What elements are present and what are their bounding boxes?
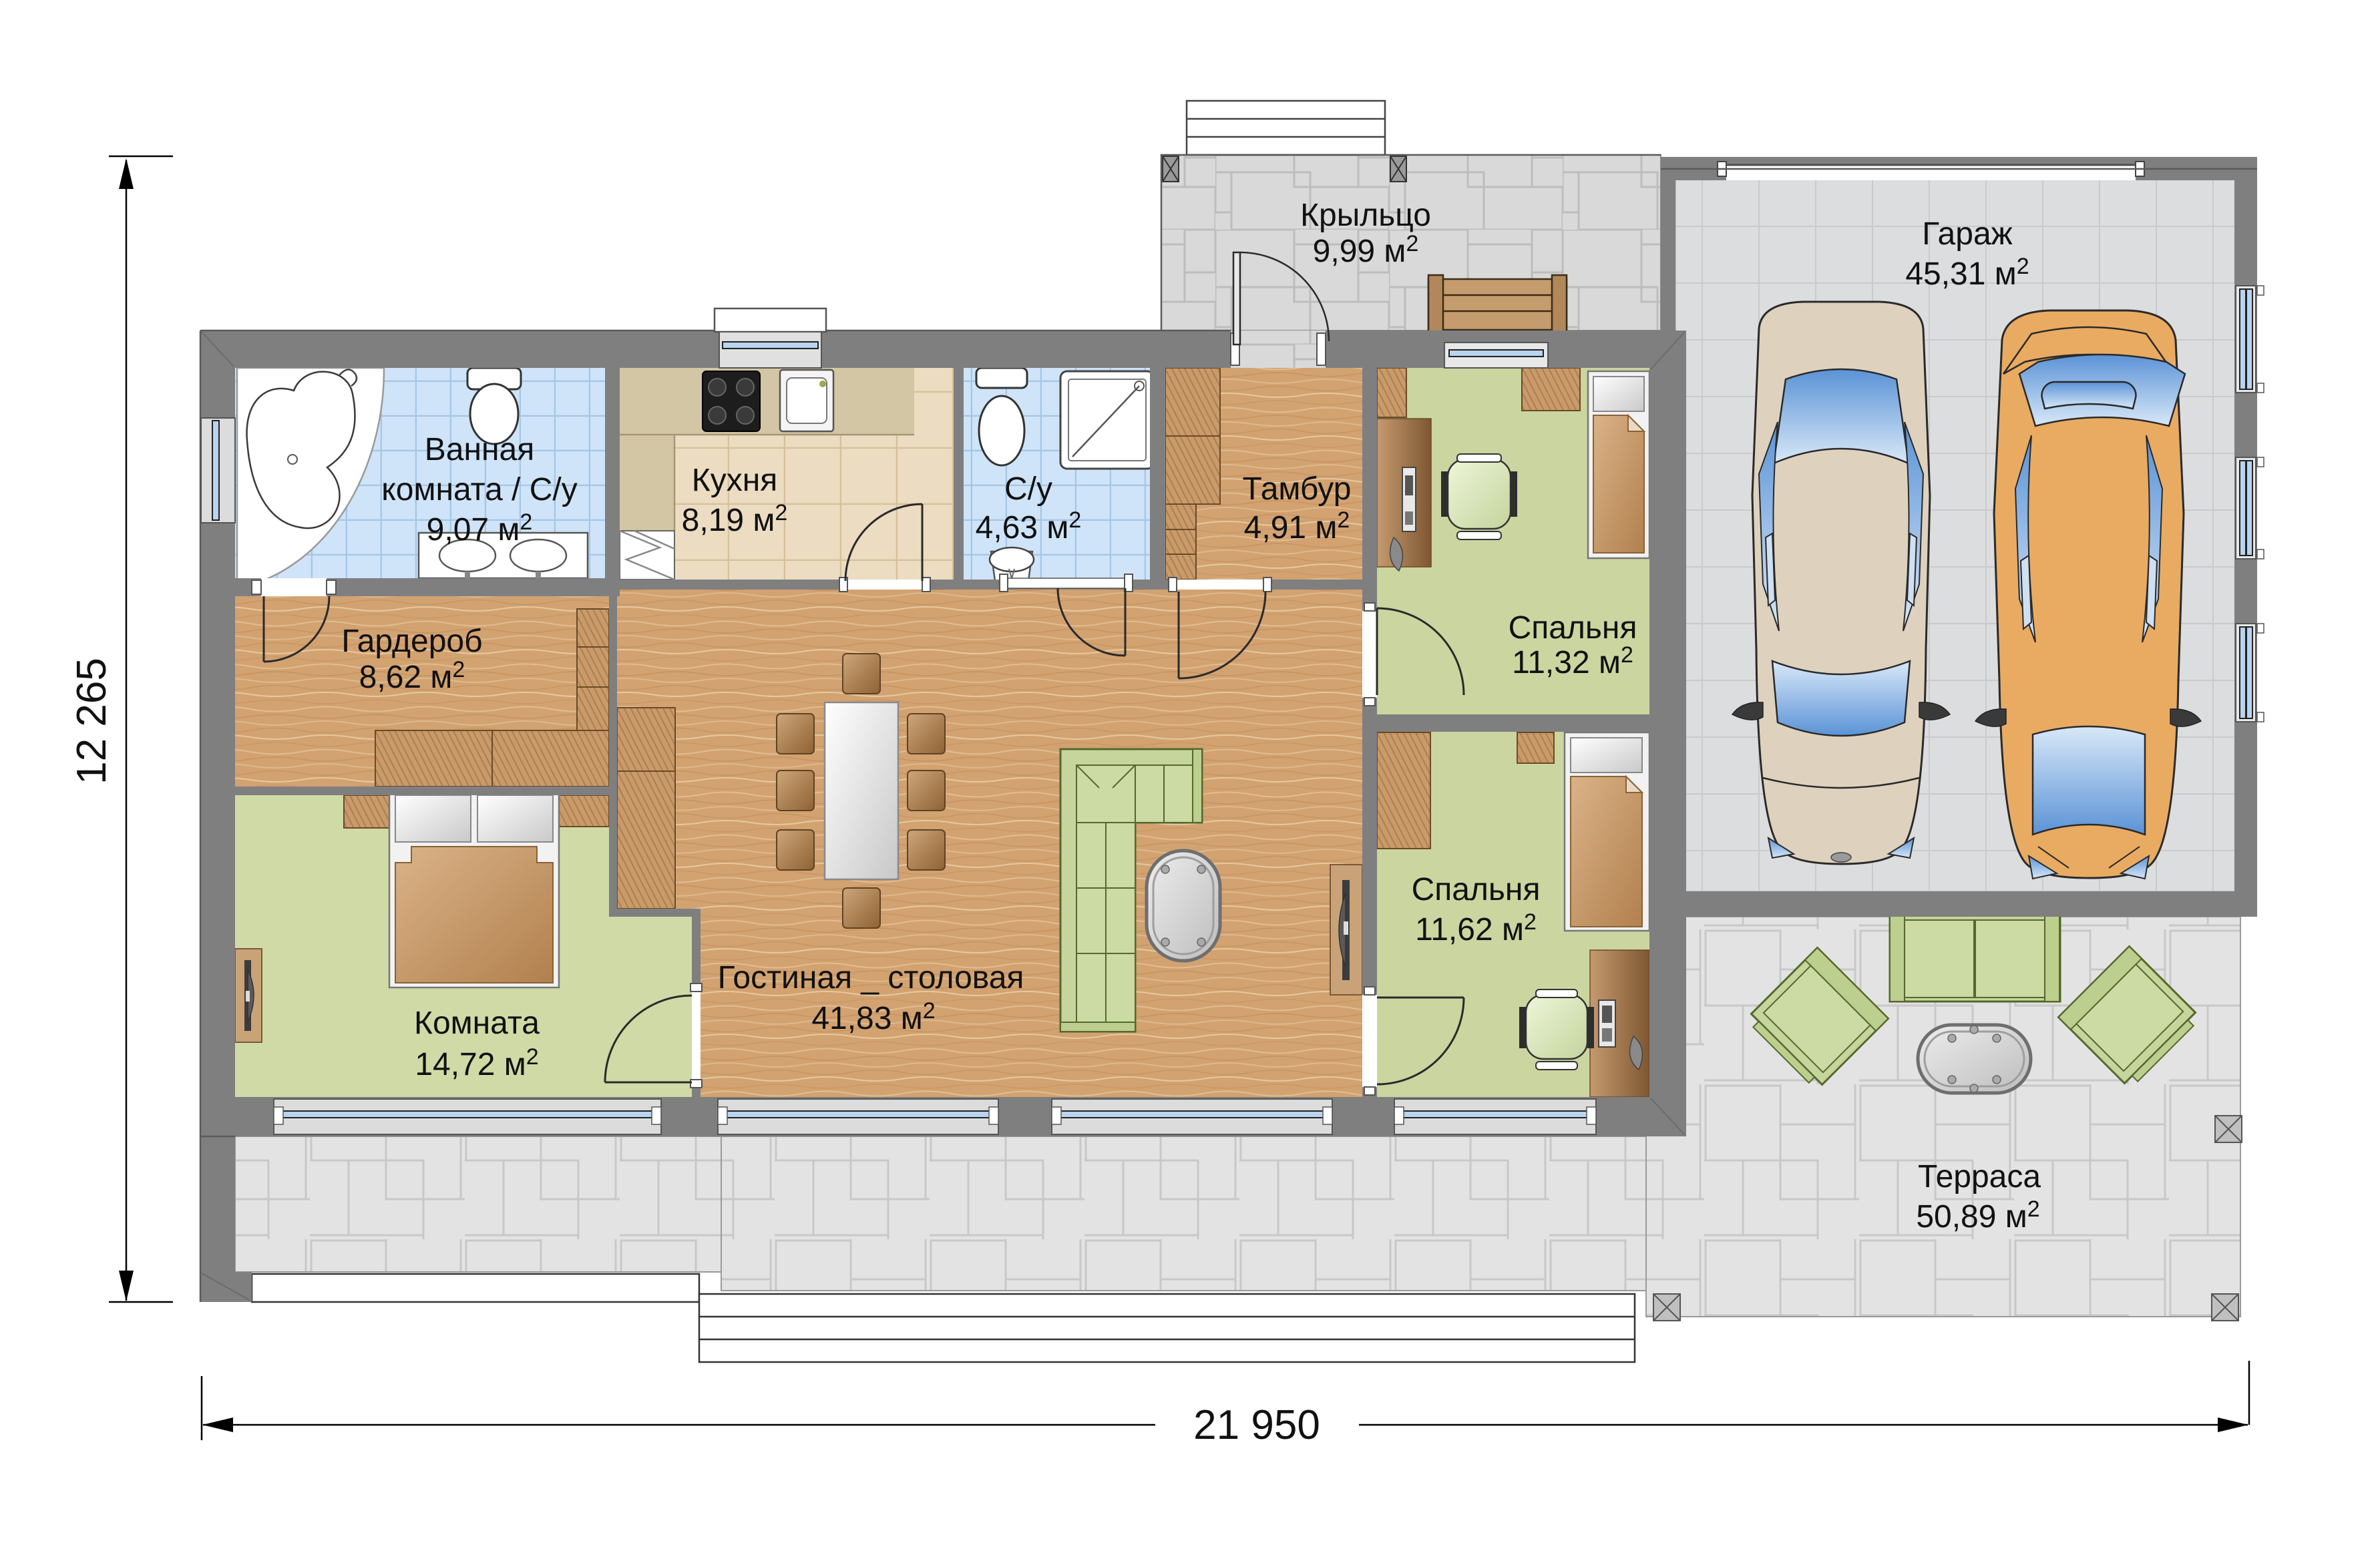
svg-text:комната / С/у: комната / С/у [381,472,578,507]
svg-text:11,32 м2: 11,32 м2 [1512,642,1633,680]
svg-text:14,72 м2: 14,72 м2 [415,1044,538,1082]
svg-text:9,99 м2: 9,99 м2 [1313,231,1419,269]
svg-text:4,91 м2: 4,91 м2 [1244,507,1350,545]
svg-text:50,89 м2: 50,89 м2 [1916,1196,2039,1235]
svg-text:41,83 м2: 41,83 м2 [811,998,935,1036]
svg-text:4,63 м2: 4,63 м2 [976,507,1082,545]
svg-text:9,07 м2: 9,07 м2 [427,509,533,547]
svg-text:С/у: С/у [1004,471,1052,507]
svg-text:Терраса: Терраса [1918,1159,2041,1194]
svg-text:Кухня: Кухня [692,463,777,498]
svg-text:Крыльцо: Крыльцо [1300,198,1431,233]
svg-text:Комната: Комната [414,1006,540,1041]
svg-text:11,62 м2: 11,62 м2 [1415,909,1537,947]
svg-text:Гараж: Гараж [1922,216,2013,252]
svg-text:Гостиная _ столовая: Гостиная _ столовая [718,960,1024,996]
svg-text:Гардероб: Гардероб [341,624,482,659]
svg-text:Спальня: Спальня [1509,610,1637,646]
svg-text:12 265: 12 265 [69,658,115,785]
svg-text:Ванная: Ванная [425,432,534,467]
svg-text:45,31 м2: 45,31 м2 [1905,254,2029,292]
svg-text:Тамбур: Тамбур [1243,471,1352,507]
svg-text:8,19 м2: 8,19 м2 [682,500,788,538]
svg-text:Спальня: Спальня [1412,872,1541,907]
svg-text:8,62 м2: 8,62 м2 [359,657,465,695]
svg-text:21 950: 21 950 [1193,1402,1320,1448]
